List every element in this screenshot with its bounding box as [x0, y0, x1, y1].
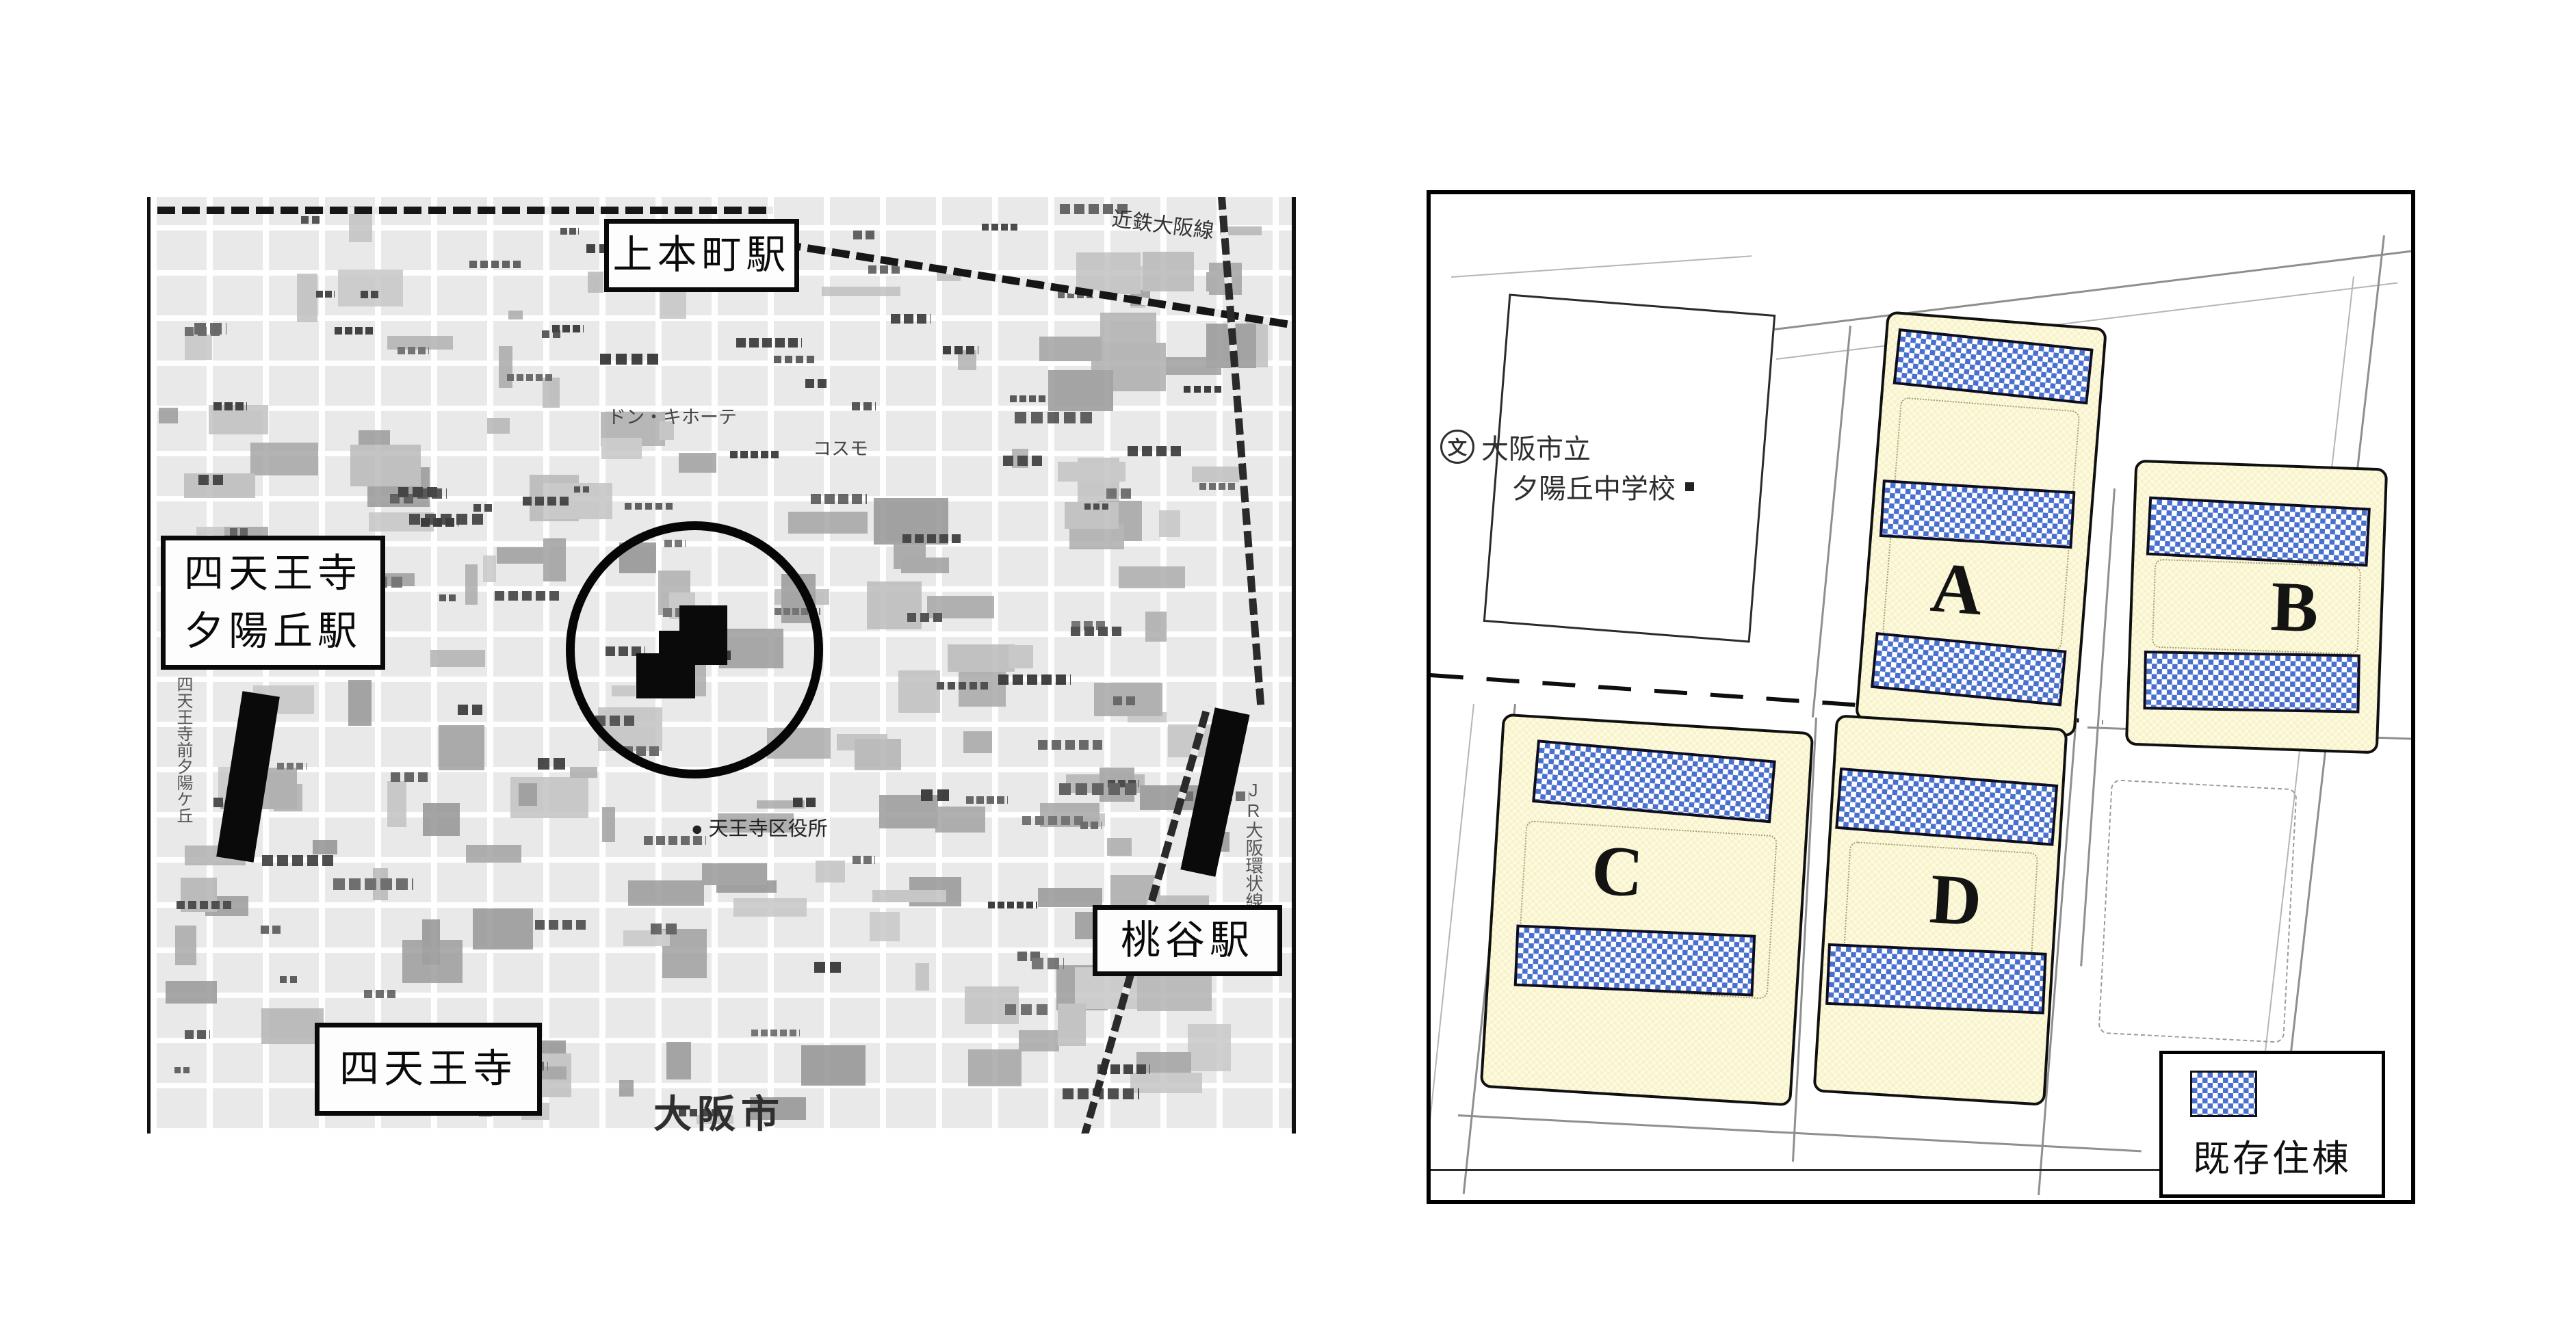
- map-texture-block: [1009, 645, 1033, 668]
- map-texture-text-run: [391, 772, 432, 782]
- ward-office-text: 天王寺区役所: [709, 818, 828, 840]
- map-texture-text-run: [853, 231, 878, 239]
- map-texture-text-run: [907, 613, 946, 622]
- block-letter-d: D: [1928, 863, 1983, 937]
- map-texture-block: [602, 807, 615, 842]
- map-texture-text-run: [185, 1030, 210, 1039]
- map-texture-block: [350, 445, 421, 486]
- ward-office-label: ● 天王寺区役所: [691, 813, 828, 841]
- map-texture-block: [1188, 1024, 1231, 1071]
- map-texture-text-run: [998, 674, 1071, 685]
- map-texture-block: [508, 311, 523, 319]
- map-texture-text-run: [174, 1067, 192, 1073]
- map-texture-text-run: [1080, 822, 1102, 829]
- map-texture-text-run: [301, 216, 322, 224]
- map-texture-block: [487, 418, 510, 434]
- block-letter-b: B: [2269, 571, 2319, 644]
- map-texture-text-run: [523, 497, 571, 506]
- map-texture-block: [297, 274, 317, 322]
- map-texture-block: [628, 880, 704, 906]
- block-a: A: [1855, 311, 2107, 737]
- site-plan-panel: 文 大阪市立 夕陽丘中学校 A B: [1427, 190, 2415, 1204]
- label-text: 桃谷駅: [1121, 912, 1254, 969]
- map-texture-text-run: [625, 503, 675, 510]
- legend-label: 既存住棟: [2163, 1128, 2382, 1182]
- label-box-momodani: 桃谷駅: [1093, 905, 1282, 976]
- map-texture-text-run: [538, 758, 569, 770]
- map-texture-block: [1038, 888, 1102, 907]
- jr-loop-line-label: JR大阪環状線: [1241, 780, 1266, 910]
- map-texture-text-run: [966, 796, 1008, 804]
- map-texture-block: [788, 512, 868, 534]
- map-texture-text-run: [421, 518, 458, 527]
- building-bar: [1514, 924, 1756, 996]
- map-texture-text-run: [316, 291, 335, 298]
- map-texture-block: [816, 861, 845, 882]
- map-texture-block: [348, 680, 372, 726]
- map-texture-text-run: [805, 379, 829, 388]
- map-texture-text-run: [1106, 488, 1135, 499]
- school-name-line2: 夕陽丘中学校: [1511, 467, 1676, 506]
- map-texture-block: [1039, 337, 1102, 361]
- map-texture-block: [430, 650, 485, 667]
- map-texture-block: [666, 1042, 691, 1079]
- map-texture-block: [968, 1049, 1022, 1086]
- map-texture-block: [1137, 972, 1212, 1011]
- map-texture-block: [313, 840, 337, 854]
- map-texture-text-run: [814, 962, 845, 973]
- map-texture-text-run: [277, 763, 307, 770]
- city-name-label: 大阪市: [653, 1084, 785, 1134]
- map-texture-block: [935, 807, 985, 833]
- map-texture-block: [915, 963, 929, 991]
- map-texture-block: [1206, 272, 1238, 291]
- map-texture-text-run: [982, 224, 1020, 231]
- map-texture-text-run: [280, 976, 300, 983]
- map-texture-block: [588, 272, 603, 293]
- map-texture-block: [948, 644, 1015, 672]
- map-texture-block: [601, 438, 642, 459]
- site-building-shape: [636, 653, 695, 698]
- map-texture-text-run: [1015, 412, 1095, 423]
- map-texture-text-run: [458, 705, 486, 715]
- school-symbol-icon: 文: [1440, 430, 1474, 464]
- map-texture-text-run: [730, 451, 781, 458]
- map-texture-block: [733, 898, 807, 917]
- map-texture-block: [1143, 252, 1194, 291]
- map-texture-text-run: [198, 475, 227, 485]
- block-path: [2152, 559, 2361, 655]
- map-texture-block: [423, 803, 460, 836]
- map-texture-text-run: [1184, 386, 1223, 393]
- map-texture-block: [1119, 566, 1185, 588]
- map-texture-block: [1019, 1030, 1059, 1051]
- map-texture-text-run: [600, 354, 663, 365]
- map-texture-text-run: [793, 798, 819, 807]
- map-texture-text-run: [495, 591, 562, 601]
- map-texture-text-run: [943, 346, 978, 354]
- donki-label: ドン・キホーテ: [608, 402, 737, 429]
- map-texture-text-run: [574, 486, 591, 493]
- map-texture-text-run: [1084, 503, 1111, 510]
- map-texture-block: [1048, 370, 1113, 411]
- map-texture-text-run: [902, 534, 964, 543]
- road-line: [1451, 255, 1752, 278]
- map-texture-text-run: [988, 902, 1037, 908]
- building-marker-icon: [1685, 482, 1694, 491]
- map-texture-text-run: [1032, 958, 1064, 969]
- cosmo-label: コスモ: [813, 434, 868, 460]
- building-bar: [1879, 480, 2076, 549]
- map-texture-block: [702, 863, 767, 885]
- map-texture-text-run: [811, 494, 867, 504]
- label-text: 上本町駅: [612, 226, 790, 284]
- map-texture-text-run: [651, 924, 681, 934]
- label-text: 四天王寺: [339, 1040, 517, 1098]
- map-texture-block: [250, 443, 318, 475]
- ward-office-marker-icon: ●: [691, 818, 703, 840]
- block-b: B: [2125, 460, 2388, 755]
- road-line: [1812, 326, 1851, 718]
- map-texture-text-run: [361, 291, 381, 298]
- map-texture-block: [439, 725, 484, 770]
- map-texture-text-run: [398, 487, 441, 497]
- label-box-shitennoji-yuhigaoka: 四天王寺 夕陽丘駅: [161, 536, 385, 670]
- block-letter-a: A: [1928, 552, 1985, 627]
- map-texture-block: [519, 783, 537, 806]
- map-texture-text-run: [364, 990, 398, 998]
- map-texture-block: [1145, 612, 1167, 642]
- map-texture-text-run: [852, 402, 876, 410]
- map-texture-text-run: [552, 325, 584, 332]
- map-texture-block: [801, 1045, 866, 1086]
- school-label: 文 大阪市立 夕陽丘中学校: [1440, 427, 1694, 506]
- map-texture-text-run: [1128, 446, 1185, 456]
- map-texture-block: [159, 408, 178, 423]
- map-texture-text-run: [469, 261, 523, 268]
- map-texture-text-run: [751, 1030, 800, 1036]
- map-texture-text-run: [921, 789, 953, 801]
- map-texture-block: [1192, 467, 1239, 482]
- map-texture-block: [338, 270, 403, 306]
- map-texture-block: [870, 912, 900, 941]
- building-bar: [1893, 328, 2094, 404]
- map-texture-text-run: [194, 323, 226, 335]
- railway-line: [157, 207, 773, 214]
- school-name-line1: 大阪市立: [1481, 427, 1591, 467]
- map-texture-text-run: [868, 265, 903, 274]
- map-texture-text-run: [1038, 740, 1106, 750]
- block-letter-c: C: [1589, 835, 1645, 908]
- map-texture-text-run: [261, 926, 283, 934]
- map-texture-block: [822, 287, 900, 296]
- map-texture-block: [387, 781, 406, 827]
- legend-swatch-existing-building: [2190, 1071, 2257, 1117]
- building-bar: [1825, 943, 2047, 1014]
- map-texture-block: [1058, 462, 1126, 482]
- map-texture-block: [466, 845, 521, 863]
- map-texture-text-run: [398, 347, 429, 354]
- label-text: 夕陽丘駅: [184, 603, 362, 660]
- map-texture-text-run: [937, 682, 991, 690]
- map-texture-text-run: [1005, 1004, 1052, 1015]
- open-lot: [2098, 779, 2297, 1043]
- map-texture-block: [679, 453, 716, 473]
- map-texture-block: [422, 919, 440, 965]
- building-bar: [2143, 651, 2360, 713]
- map-texture-text-run: [473, 504, 495, 512]
- map-texture-block: [660, 291, 686, 319]
- map-texture-block: [499, 346, 512, 388]
- map-texture-block: [175, 926, 196, 965]
- map-texture-block: [465, 564, 478, 605]
- building-bar: [1835, 768, 2058, 846]
- station-name-vertical-label: 四天王寺前夕陽ケ丘: [171, 676, 195, 824]
- map-texture-text-run: [1022, 816, 1087, 825]
- label-text: 四天王寺: [184, 545, 362, 603]
- map-texture-block: [185, 335, 212, 360]
- map-texture-text-run: [177, 901, 234, 909]
- map-texture-text-run: [507, 374, 554, 381]
- map-texture-block: [570, 767, 597, 778]
- map-texture-text-run: [262, 855, 337, 866]
- map-texture-text-run: [213, 402, 247, 410]
- map-texture-text-run: [1199, 483, 1236, 490]
- map-texture-block: [619, 1080, 634, 1097]
- map-texture-block: [543, 538, 566, 581]
- label-box-uehommachi: 上本町駅: [604, 219, 799, 292]
- map-texture-text-run: [560, 228, 579, 235]
- map-texture-text-run: [736, 338, 802, 348]
- street-map-panel: 上本町駅 四天王寺 夕陽丘駅 桃谷駅 四天王寺 大阪市 近鉄大阪線 ドン・キホー…: [147, 197, 1296, 1134]
- page: 上本町駅 四天王寺 夕陽丘駅 桃谷駅 四天王寺 大阪市 近鉄大阪線 ドン・キホー…: [0, 0, 2576, 1323]
- map-texture-block: [867, 581, 922, 629]
- block-c: C: [1480, 713, 1814, 1107]
- map-texture-text-run: [439, 594, 458, 601]
- map-texture-block: [1107, 838, 1132, 856]
- label-box-shitennoji-south: 四天王寺: [315, 1023, 542, 1116]
- map-texture-block: [963, 731, 992, 753]
- map-texture-text-run: [535, 920, 589, 930]
- road-line: [1458, 1114, 2142, 1152]
- map-texture-block: [473, 908, 533, 949]
- map-texture-text-run: [1059, 783, 1141, 795]
- map-texture-text-run: [333, 878, 413, 890]
- legend: 既存住棟: [2159, 1051, 2385, 1198]
- map-texture-text-run: [335, 327, 375, 335]
- road-line: [1431, 1169, 2161, 1171]
- map-texture-text-run: [774, 356, 817, 363]
- map-texture-text-run: [1003, 456, 1045, 466]
- map-texture-text-run: [853, 856, 875, 864]
- map-texture-block: [855, 739, 901, 770]
- map-texture-block: [1159, 510, 1180, 537]
- map-texture-text-run: [1071, 627, 1125, 636]
- block-d: D: [1812, 714, 2068, 1106]
- map-texture-block: [1058, 1004, 1086, 1046]
- map-texture-text-run: [1010, 395, 1047, 402]
- map-texture-block: [1130, 1073, 1202, 1093]
- map-texture-text-run: [891, 314, 931, 324]
- map-texture-block: [166, 981, 217, 1004]
- map-texture-block: [483, 555, 496, 582]
- road-line: [1427, 704, 1474, 1194]
- map-texture-text-run: [1113, 696, 1139, 705]
- map-texture-block: [898, 670, 940, 713]
- map-texture-block: [901, 558, 949, 573]
- map-texture-block: [543, 378, 560, 408]
- map-texture-text-run: [230, 528, 250, 536]
- building-bar: [1532, 739, 1776, 823]
- building-bar: [2146, 497, 2371, 567]
- map-texture-block: [872, 890, 946, 902]
